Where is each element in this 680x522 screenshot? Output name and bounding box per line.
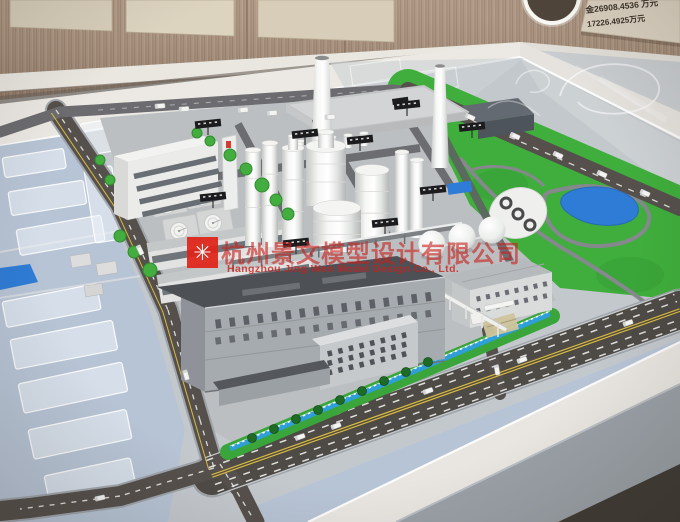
- tree: [105, 175, 115, 185]
- truck: [267, 110, 277, 115]
- tree: [270, 194, 282, 206]
- truck: [179, 106, 189, 111]
- tree: [192, 128, 202, 138]
- red-banner: [226, 141, 231, 148]
- showroom-photo: ✳ 杭州景文模型设计有限公司 Hangzhou Jing Wen Model D…: [0, 0, 680, 522]
- tree: [143, 263, 157, 277]
- tree: [255, 178, 269, 192]
- tree: [282, 208, 294, 220]
- scale-model-scene: [0, 0, 680, 522]
- tree: [205, 136, 215, 146]
- wall-panel: [10, 0, 112, 31]
- tree: [248, 434, 257, 443]
- spherical-tank: [449, 224, 476, 251]
- spherical-tank: [419, 231, 446, 258]
- wall-panel: [258, 0, 394, 42]
- tree: [358, 387, 367, 396]
- tree: [424, 358, 433, 367]
- tree: [314, 406, 323, 415]
- truck: [325, 114, 335, 119]
- truck: [155, 103, 165, 108]
- tree: [95, 155, 105, 165]
- tree: [224, 149, 236, 161]
- tree: [292, 415, 301, 424]
- tree: [114, 230, 126, 242]
- tree: [402, 368, 411, 377]
- entrance-tower: [222, 135, 238, 211]
- truck: [238, 107, 248, 112]
- tree: [336, 396, 345, 405]
- tree: [380, 377, 389, 386]
- ring-light: [525, 0, 579, 23]
- tree: [270, 425, 279, 434]
- wall-panel: [126, 0, 234, 36]
- spherical-tank: [479, 217, 506, 244]
- tree: [240, 163, 252, 175]
